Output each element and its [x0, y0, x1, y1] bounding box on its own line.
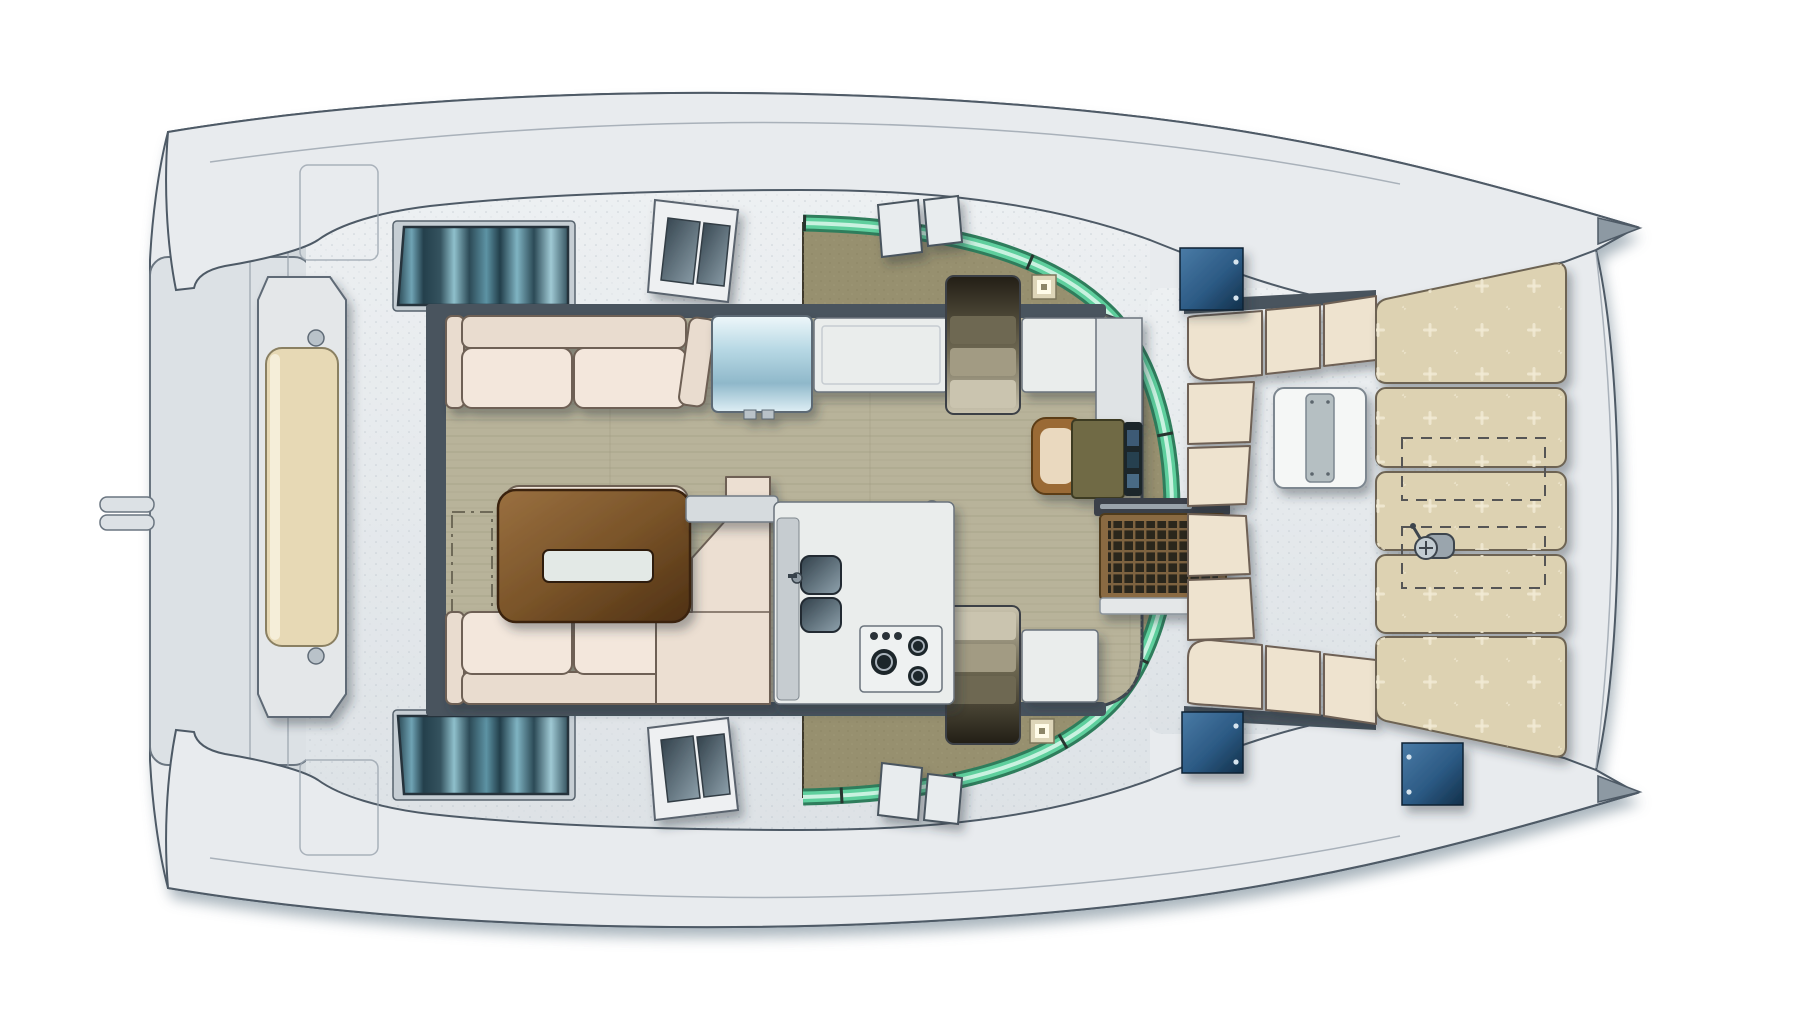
hatch-blue: [1402, 743, 1463, 805]
saloon: [426, 276, 1142, 744]
stove: [860, 626, 942, 692]
marble-strip: [777, 518, 799, 700]
starboard-hull-window: [398, 716, 568, 794]
companionway-starboard: [946, 606, 1020, 744]
sideboard: [814, 318, 948, 392]
hatch-blue: [1182, 712, 1243, 773]
companionway-port: [946, 276, 1020, 414]
boat-deck-plan: [0, 0, 1800, 1021]
aft-sunpad: [1376, 260, 1566, 760]
bow-bench: [258, 277, 346, 717]
dining-table: [498, 490, 690, 622]
sink-basin: [801, 598, 841, 632]
sink-basin: [801, 556, 841, 594]
deck-plan-svg: [0, 0, 1800, 1021]
table-tray: [543, 550, 653, 582]
bowsprit-fitting: [100, 515, 154, 530]
cockpit-table: [1274, 388, 1366, 488]
front-sill: [426, 304, 446, 716]
refrigerator: [712, 316, 812, 412]
nav-desk: [1072, 420, 1124, 498]
hatch-blue: [1180, 248, 1243, 310]
port-hull-window: [398, 227, 568, 305]
bowsprit-fitting: [100, 497, 154, 512]
nav-station: [1032, 418, 1142, 498]
